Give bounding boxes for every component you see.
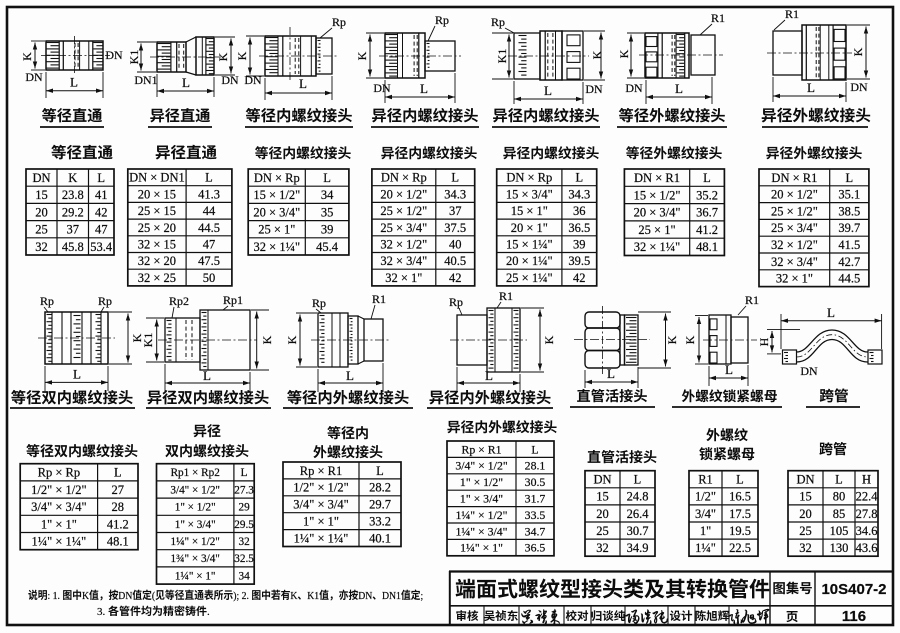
svg-text:DN: DN (358, 591, 373, 603)
svg-text:32: 32 (596, 541, 609, 555)
svg-text:20 × 3/4": 20 × 3/4" (253, 205, 300, 219)
svg-text:22.5: 22.5 (729, 541, 751, 555)
svg-text:20 × 1¼": 20 × 1¼" (506, 254, 553, 268)
svg-text:32 × 25: 32 × 25 (138, 271, 176, 285)
svg-text:R1: R1 (745, 293, 759, 307)
svg-text:K: K (665, 335, 679, 344)
svg-text:42: 42 (573, 271, 586, 285)
svg-text:44.5: 44.5 (838, 272, 860, 286)
svg-text:32 × 20: 32 × 20 (138, 254, 176, 268)
svg-text:105: 105 (830, 524, 849, 538)
svg-text:20: 20 (35, 205, 48, 219)
svg-text:27.3: 27.3 (234, 484, 254, 496)
svg-text:29.7: 29.7 (369, 498, 391, 512)
svg-text:47: 47 (95, 223, 108, 237)
svg-text:34.3: 34.3 (568, 187, 590, 201)
svg-text:K: K (285, 335, 299, 344)
svg-text:: 1.: : 1. (48, 591, 60, 603)
svg-text:1" × 1": 1" × 1" (41, 517, 77, 531)
svg-text:39: 39 (573, 238, 586, 252)
svg-text:45.8: 45.8 (62, 240, 84, 254)
svg-text:44: 44 (203, 204, 216, 218)
svg-text:25 × 1": 25 × 1" (638, 223, 675, 237)
svg-text:29.2: 29.2 (62, 205, 84, 219)
svg-text:32: 32 (35, 240, 48, 254)
svg-text:19.5: 19.5 (729, 524, 751, 538)
svg-text:29: 29 (239, 502, 251, 514)
svg-text:1" × 3/4": 1" × 3/4" (175, 519, 216, 531)
svg-text:34.3: 34.3 (444, 187, 466, 201)
svg-text:DN × Rp: DN × Rp (381, 171, 427, 185)
svg-text:80: 80 (833, 490, 846, 504)
svg-text:27: 27 (112, 483, 125, 497)
svg-text:40.5: 40.5 (444, 254, 466, 268)
svg-text:1¾" × 3/4": 1¾" × 3/4" (171, 553, 220, 565)
svg-text:K: K (542, 335, 556, 344)
svg-text:41.2: 41.2 (107, 517, 129, 531)
svg-text:K: K (260, 335, 274, 344)
svg-text:25 × 15: 25 × 15 (138, 204, 176, 218)
svg-text:15 × 1¼": 15 × 1¼" (506, 238, 553, 252)
svg-text:DN: DN (118, 591, 133, 603)
svg-text:K: K (851, 47, 865, 56)
svg-text:DN: DN (585, 82, 603, 96)
svg-text:15: 15 (35, 188, 48, 202)
svg-text:31.7: 31.7 (525, 492, 546, 506)
svg-text:Rp: Rp (40, 294, 54, 308)
svg-text:L: L (323, 171, 331, 185)
svg-text:L: L (703, 171, 711, 185)
svg-text:34.6: 34.6 (856, 524, 878, 538)
svg-text:R1: R1 (785, 7, 799, 21)
svg-text:32 × 1¼": 32 × 1¼" (634, 240, 681, 254)
svg-text:35: 35 (321, 205, 334, 219)
svg-text:1/2" × 1/2": 1/2" × 1/2" (293, 481, 348, 495)
svg-text:20 × 1/2": 20 × 1/2" (771, 188, 818, 202)
svg-text:39.5: 39.5 (568, 254, 590, 268)
svg-text:1¼" × 1": 1¼" × 1" (175, 570, 216, 582)
svg-text:DN: DN (593, 473, 611, 487)
svg-text:L: L (835, 473, 843, 487)
svg-text:H: H (757, 337, 771, 346)
svg-text:Rp2: Rp2 (169, 294, 189, 308)
svg-text:DN: DN (25, 70, 43, 84)
svg-text:20 × 3/4": 20 × 3/4" (634, 206, 681, 220)
svg-text:Rp × R1: Rp × R1 (461, 442, 501, 456)
svg-text:15 × 3/4": 15 × 3/4" (506, 187, 553, 201)
svg-text:Rp: Rp (449, 295, 463, 309)
svg-text:(: ( (152, 591, 156, 603)
svg-text:L: L (485, 368, 493, 383)
svg-text:36: 36 (573, 204, 586, 218)
svg-text:L: L (607, 366, 615, 381)
svg-text:20 × 1": 20 × 1" (511, 221, 548, 235)
svg-text:50: 50 (203, 271, 216, 285)
svg-text:DN: DN (221, 73, 239, 87)
svg-text:39.7: 39.7 (838, 221, 860, 235)
svg-text:32 × 1¼": 32 × 1¼" (254, 240, 301, 254)
svg-text:20 × 15: 20 × 15 (138, 187, 176, 201)
svg-text:L: L (544, 83, 552, 98)
svg-text:3/4" × 3/4": 3/4" × 3/4" (31, 500, 86, 514)
svg-text:16.5: 16.5 (729, 490, 751, 504)
svg-text:20 × 1/2": 20 × 1/2" (380, 187, 427, 201)
svg-text:15 × 1": 15 × 1" (511, 204, 548, 218)
svg-text:20: 20 (799, 507, 812, 521)
svg-text:R1: R1 (499, 289, 513, 303)
svg-text:43.6: 43.6 (856, 541, 878, 555)
svg-text:38.5: 38.5 (838, 204, 860, 218)
svg-text:48.1: 48.1 (107, 535, 129, 549)
svg-text:K: K (617, 49, 631, 58)
svg-text:28.1: 28.1 (525, 459, 546, 473)
svg-text:48.1: 48.1 (696, 240, 718, 254)
svg-text:1¼" × 3/4": 1¼" × 3/4" (455, 524, 507, 538)
svg-text:32.5: 32.5 (234, 553, 254, 565)
svg-text:1" × 1/2": 1" × 1/2" (460, 475, 503, 489)
svg-text:Rp: Rp (332, 15, 346, 29)
svg-text:41.5: 41.5 (838, 238, 860, 252)
svg-text:R1: R1 (711, 11, 725, 25)
svg-text:30.7: 30.7 (627, 524, 649, 538)
svg-text:42: 42 (95, 205, 108, 219)
svg-text:41.2: 41.2 (696, 223, 718, 237)
svg-text:DN: DN (800, 364, 818, 378)
svg-text:Rp: Rp (312, 296, 326, 310)
svg-text:K: K (235, 51, 249, 60)
svg-text:DN: DN (796, 473, 814, 487)
svg-text:); 2.: ); 2. (233, 591, 249, 603)
svg-text:42: 42 (449, 271, 462, 285)
svg-text:L: L (736, 473, 744, 487)
svg-text:K: K (20, 52, 34, 61)
svg-text:41.3: 41.3 (198, 187, 220, 201)
svg-text:1¼" × 1/2": 1¼" × 1/2" (455, 508, 507, 522)
svg-text:L: L (346, 368, 354, 383)
svg-text:L: L (73, 367, 81, 382)
svg-text:K: K (68, 171, 77, 185)
svg-text:L: L (634, 473, 642, 487)
svg-text:L: L (376, 464, 384, 478)
svg-text:1" × 1/2": 1" × 1/2" (175, 502, 216, 514)
svg-text:DN: DN (373, 81, 391, 95)
svg-text:1/2" × 1/2": 1/2" × 1/2" (31, 483, 86, 497)
svg-text:3.: 3. (97, 606, 106, 618)
svg-text:25 × 1": 25 × 1" (258, 223, 295, 237)
svg-text:1¼": 1¼" (695, 541, 716, 555)
svg-text:K: K (683, 335, 697, 344)
svg-text:34.9: 34.9 (627, 541, 649, 555)
svg-text:1" × 1": 1" × 1" (303, 515, 339, 529)
svg-text:Rp1 × Rp2: Rp1 × Rp2 (171, 467, 220, 479)
svg-text:47.5: 47.5 (198, 254, 220, 268)
svg-text:35.2: 35.2 (696, 188, 718, 202)
svg-text:32: 32 (799, 541, 812, 555)
svg-text:DN1: DN1 (382, 591, 401, 603)
svg-text:36.5: 36.5 (525, 541, 546, 555)
svg-text:35.1: 35.1 (838, 188, 860, 202)
svg-text:47: 47 (203, 238, 216, 252)
svg-text:K: K (355, 51, 369, 60)
svg-text:41: 41 (95, 188, 108, 202)
svg-text:L: L (827, 305, 835, 320)
svg-text:26.4: 26.4 (627, 507, 650, 521)
svg-text:Rp: Rp (491, 15, 505, 29)
svg-text:25: 25 (799, 524, 812, 538)
svg-text:Rp: Rp (435, 13, 449, 27)
svg-text:H: H (862, 473, 871, 487)
svg-text:40: 40 (449, 238, 462, 252)
svg-text:15 × 1/2": 15 × 1/2" (253, 188, 300, 202)
svg-text:25: 25 (35, 223, 48, 237)
svg-text:DN × Rp: DN × Rp (254, 171, 300, 185)
svg-text:37: 37 (67, 223, 80, 237)
svg-text:L: L (70, 75, 78, 90)
svg-text:K: K (82, 591, 90, 603)
svg-text:37: 37 (449, 204, 462, 218)
svg-text:.: . (207, 606, 210, 618)
svg-text:DN × R1: DN × R1 (634, 171, 680, 185)
svg-text:36.5: 36.5 (568, 221, 590, 235)
svg-text:36.7: 36.7 (696, 206, 718, 220)
svg-text:Rp × Rp: Rp × Rp (38, 466, 80, 480)
svg-text:DN: DN (32, 171, 50, 185)
svg-text:25 × 3/4": 25 × 3/4" (380, 221, 427, 235)
svg-text:34: 34 (321, 188, 334, 202)
svg-text:25 × 1/2": 25 × 1/2" (380, 204, 427, 218)
svg-text:25 × 20: 25 × 20 (138, 221, 176, 235)
svg-text:45.4: 45.4 (316, 240, 339, 254)
svg-text:32 × 1": 32 × 1" (776, 272, 813, 286)
svg-text:22.4: 22.4 (856, 490, 879, 504)
svg-text:32 × 15: 32 × 15 (138, 238, 176, 252)
svg-text:24.8: 24.8 (627, 490, 649, 504)
svg-text:Rp × R1: Rp × R1 (300, 464, 342, 478)
svg-text:K: K (290, 591, 298, 603)
svg-text:3/4" × 3/4": 3/4" × 3/4" (293, 498, 348, 512)
svg-text:32 × 1/2": 32 × 1/2" (771, 238, 818, 252)
svg-text:1/2": 1/2" (695, 490, 716, 504)
svg-text:DN: DN (105, 48, 123, 62)
svg-text:34: 34 (239, 570, 251, 582)
svg-text:53.4: 53.4 (90, 240, 113, 254)
svg-text:15: 15 (799, 490, 812, 504)
svg-text:DN: DN (625, 81, 643, 95)
svg-text:1": 1" (700, 524, 711, 538)
svg-text:25 × 1¼": 25 × 1¼" (506, 271, 553, 285)
svg-text:30.5: 30.5 (525, 475, 546, 489)
svg-text:K1: K1 (495, 49, 509, 64)
svg-text:25 × 1/2": 25 × 1/2" (771, 204, 818, 218)
svg-text:17.5: 17.5 (729, 507, 751, 521)
svg-text:Rp: Rp (98, 294, 112, 308)
svg-text:1¼" × 1": 1¼" × 1" (460, 541, 503, 555)
svg-text:R1: R1 (372, 292, 386, 306)
svg-text:L: L (114, 466, 122, 480)
svg-text:25 × 3/4": 25 × 3/4" (771, 221, 818, 235)
svg-text:28.2: 28.2 (369, 481, 391, 495)
svg-text:DN × Rp: DN × Rp (506, 171, 552, 185)
svg-text:L: L (420, 81, 428, 96)
svg-text:K: K (216, 52, 230, 61)
svg-text:L: L (845, 171, 853, 185)
svg-text:1" × 3/4": 1" × 3/4" (460, 492, 503, 506)
svg-text:1¼" × 1¼": 1¼" × 1¼" (32, 535, 87, 549)
svg-text:L: L (531, 442, 538, 456)
svg-text:34.7: 34.7 (525, 524, 546, 538)
svg-text:33.2: 33.2 (369, 515, 391, 529)
svg-text:L: L (575, 171, 583, 185)
svg-text:20: 20 (596, 507, 609, 521)
svg-text:DN × DN1: DN × DN1 (129, 171, 185, 185)
svg-text:;: ; (420, 591, 423, 603)
svg-text:15: 15 (596, 490, 609, 504)
svg-text:K1: K1 (307, 591, 319, 603)
svg-text:130: 130 (830, 541, 849, 555)
svg-text:L: L (299, 76, 307, 91)
svg-text:1¼" × 1/2": 1¼" × 1/2" (171, 536, 220, 548)
svg-text:L: L (725, 362, 733, 377)
svg-text:L: L (241, 467, 248, 479)
svg-text:85: 85 (833, 507, 846, 521)
svg-text:K1: K1 (127, 50, 141, 65)
svg-text:L: L (203, 368, 211, 383)
svg-text:3/4" × 1/2": 3/4" × 1/2" (455, 459, 508, 473)
svg-text:K: K (590, 50, 604, 59)
svg-text:116: 116 (842, 608, 866, 625)
svg-text:44.5: 44.5 (198, 221, 220, 235)
svg-text:DN1: DN1 (134, 73, 157, 87)
svg-text:3/4": 3/4" (695, 507, 716, 521)
svg-text:L: L (205, 171, 213, 185)
svg-text:DN × R1: DN × R1 (771, 171, 817, 185)
svg-text:DN: DN (244, 73, 262, 87)
svg-text:40.1: 40.1 (369, 531, 391, 545)
svg-text:32 × 1": 32 × 1" (385, 271, 422, 285)
svg-text:K1: K1 (141, 333, 155, 348)
svg-text:L: L (97, 171, 105, 185)
svg-text:37.5: 37.5 (444, 221, 466, 235)
svg-text:32 × 3/4": 32 × 3/4" (380, 254, 427, 268)
svg-text:29.5: 29.5 (234, 519, 254, 531)
svg-text:3/4" × 1/2": 3/4" × 1/2" (170, 484, 220, 496)
svg-text:L: L (807, 80, 815, 95)
svg-text:32: 32 (239, 536, 250, 548)
svg-text:DN: DN (850, 80, 868, 94)
svg-text:L: L (451, 171, 459, 185)
svg-text:39: 39 (321, 223, 334, 237)
svg-text:10S407-2: 10S407-2 (821, 581, 886, 598)
svg-text:23.8: 23.8 (62, 188, 84, 202)
svg-text:R1: R1 (698, 473, 713, 487)
svg-text:Rp1: Rp1 (223, 293, 243, 307)
svg-text:27.8: 27.8 (856, 507, 878, 521)
svg-text:42.7: 42.7 (838, 255, 860, 269)
svg-text:25: 25 (596, 524, 609, 538)
svg-text:L: L (182, 75, 190, 90)
svg-text:15 × 1/2": 15 × 1/2" (634, 188, 681, 202)
svg-text:L: L (675, 81, 683, 96)
svg-text:33.5: 33.5 (525, 508, 546, 522)
svg-text:32 × 3/4": 32 × 3/4" (771, 255, 818, 269)
svg-text:1¼" × 1¼": 1¼" × 1¼" (294, 531, 349, 545)
svg-text:32 × 1/2": 32 × 1/2" (380, 238, 427, 252)
svg-text:28: 28 (112, 500, 125, 514)
